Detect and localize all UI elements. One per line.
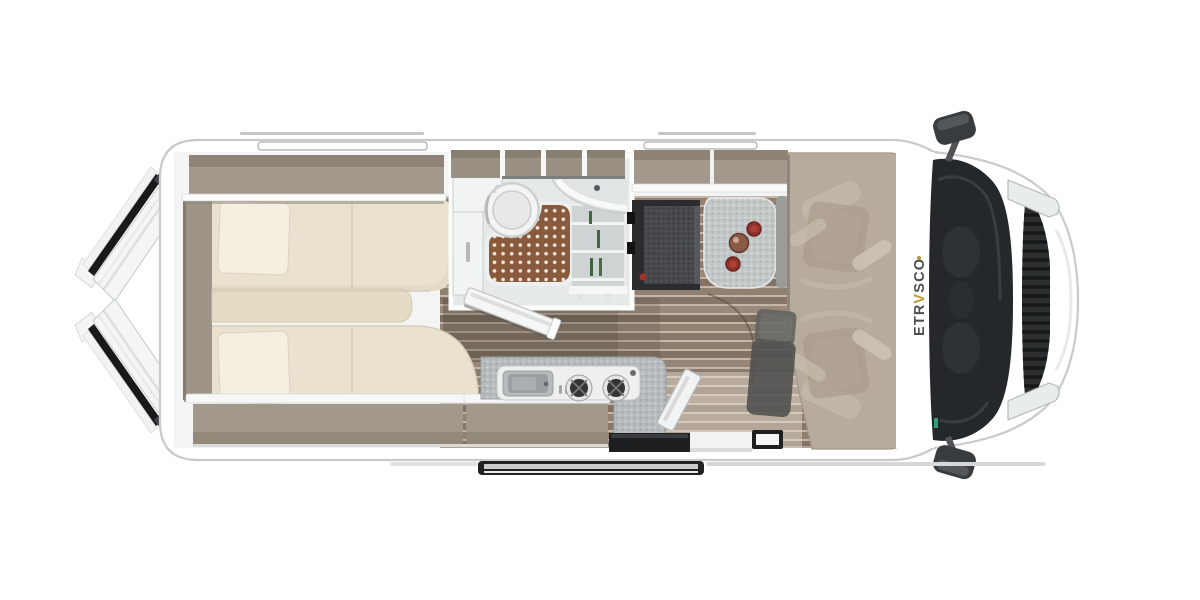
svg-text:ETRVSCO: ETRVSCO [912,258,928,336]
